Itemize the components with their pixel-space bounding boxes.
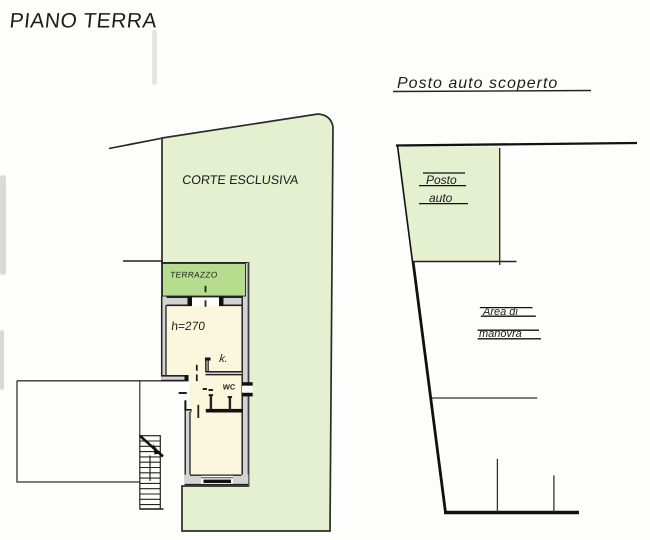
svg-text:auto: auto — [429, 191, 453, 205]
svg-text:TERRAZZO: TERRAZZO — [170, 271, 218, 280]
svg-text:Posto auto scoperto: Posto auto scoperto — [397, 75, 558, 92]
svg-text:h=270: h=270 — [171, 319, 206, 333]
svg-text:WC: WC — [222, 383, 236, 392]
svg-text:k.: k. — [219, 353, 229, 365]
svg-text:Posto: Posto — [426, 173, 457, 187]
svg-text:PIANO TERRA: PIANO TERRA — [8, 10, 158, 33]
svg-text:CORTE ESCLUSIVA: CORTE ESCLUSIVA — [182, 173, 300, 187]
